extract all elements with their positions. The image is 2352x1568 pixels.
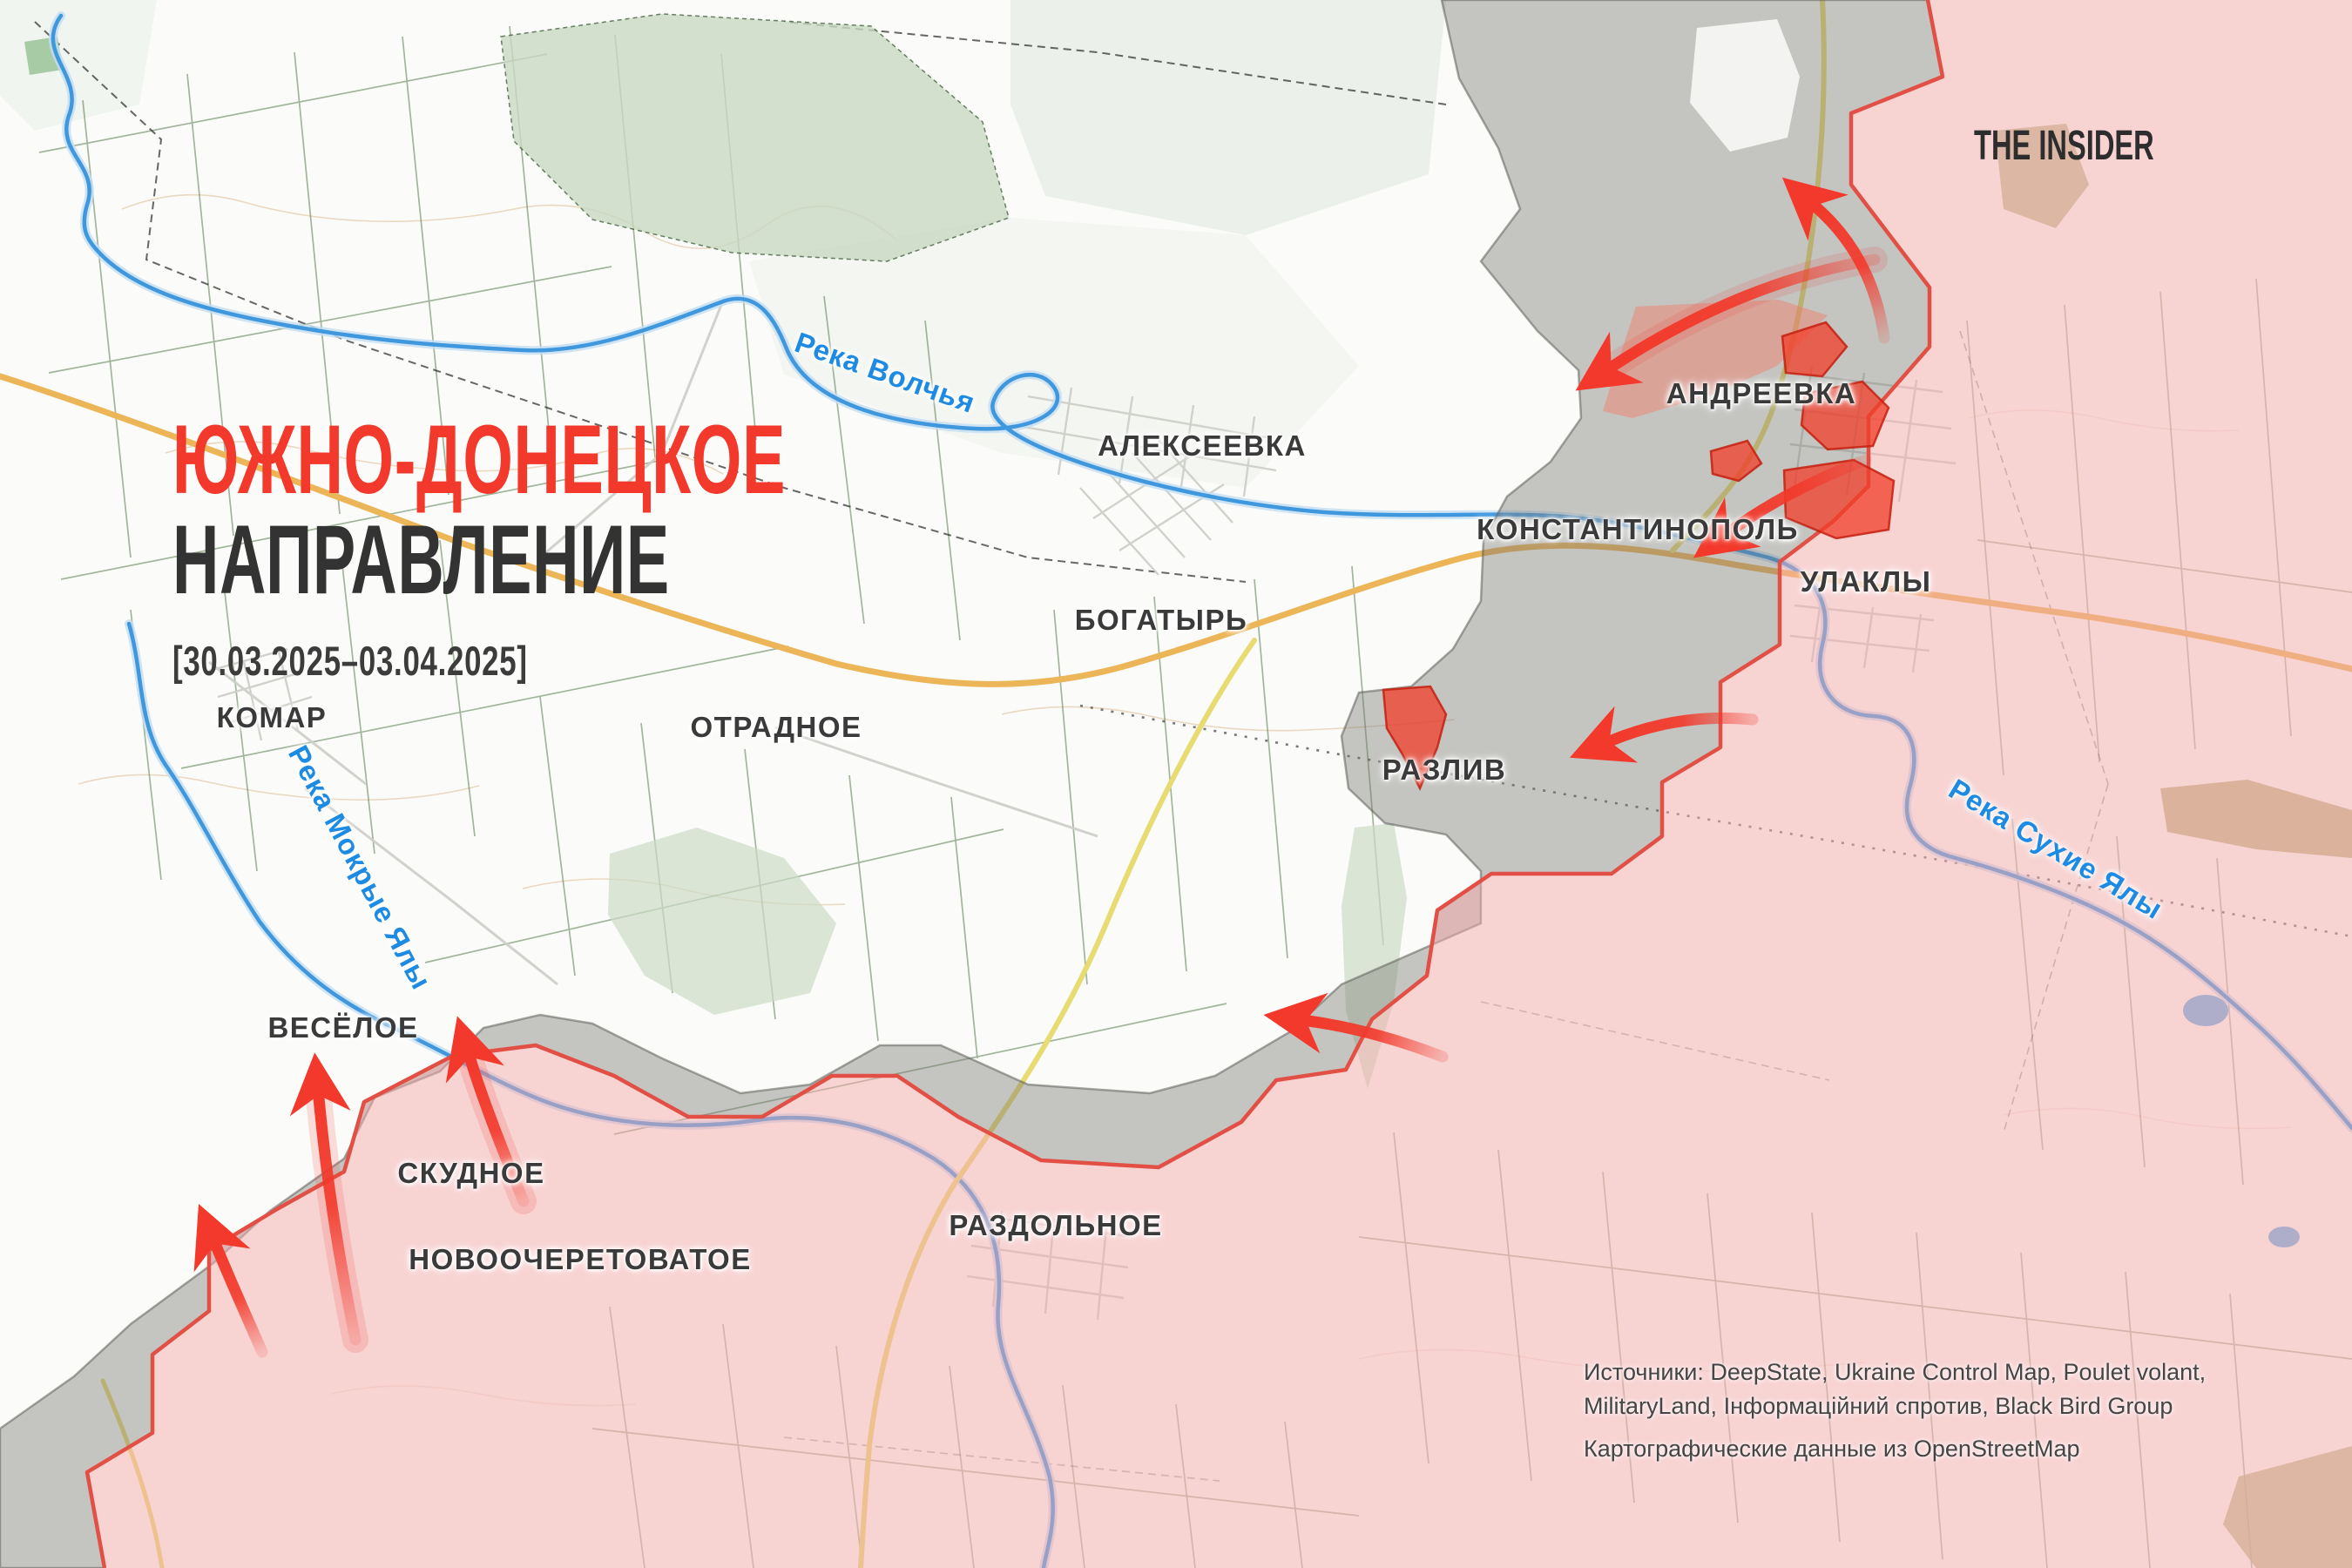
sources-block: Источники: DeepState, Ukraine Control Ma… xyxy=(1584,1355,2206,1466)
sources-line3: Картографические данные из OpenStreetMap xyxy=(1584,1432,2206,1466)
town-label-alekseevka: АЛЕКСЕЕВКА xyxy=(1098,429,1307,463)
sources-line2: MilitaryLand, Інформаційний спротив, Bla… xyxy=(1584,1389,2206,1423)
town-label-novocheretovatoye: НОВООЧЕРЕТОВАТОЕ xyxy=(409,1243,751,1276)
town-label-skudnoye: СКУДНОЕ xyxy=(397,1157,544,1190)
town-label-andreevka: АНДРЕЕВКА xyxy=(1666,377,1857,410)
town-label-razdolnoye: РАЗДОЛЬНОЕ xyxy=(949,1209,1162,1242)
sources-line1: Источники: DeepState, Ukraine Control Ma… xyxy=(1584,1355,2206,1389)
map-date-range: [30.03.2025–03.04.2025] xyxy=(172,637,860,685)
town-label-razliv: РАЗЛИВ xyxy=(1382,754,1507,787)
map-title-line2: НАПРАВЛЕНИЕ xyxy=(172,510,786,610)
town-label-ulakly: УЛАКЛЫ xyxy=(1801,565,1932,598)
town-label-konstantinopol: КОНСТАНТИНОПОЛЬ xyxy=(1477,513,1799,546)
map-infographic: АЛЕКСЕЕВКА АНДРЕЕВКА КОНСТАНТИНОПОЛЬ УЛА… xyxy=(0,0,2352,1568)
town-label-vesyoloye: ВЕСЁЛОЕ xyxy=(267,1011,418,1044)
map-title-line1: ЮЖНО-ДОНЕЦКОЕ xyxy=(172,409,786,510)
map-canvas xyxy=(0,0,2352,1568)
title-block: ЮЖНО-ДОНЕЦКОЕ НАПРАВЛЕНИЕ [30.03.2025–03… xyxy=(172,409,1102,685)
the-insider-logo: THE INSIDER xyxy=(1974,122,2154,170)
town-label-komar: КОМАР xyxy=(217,701,328,734)
town-label-otradnoye: ОТРАДНОЕ xyxy=(690,711,862,744)
